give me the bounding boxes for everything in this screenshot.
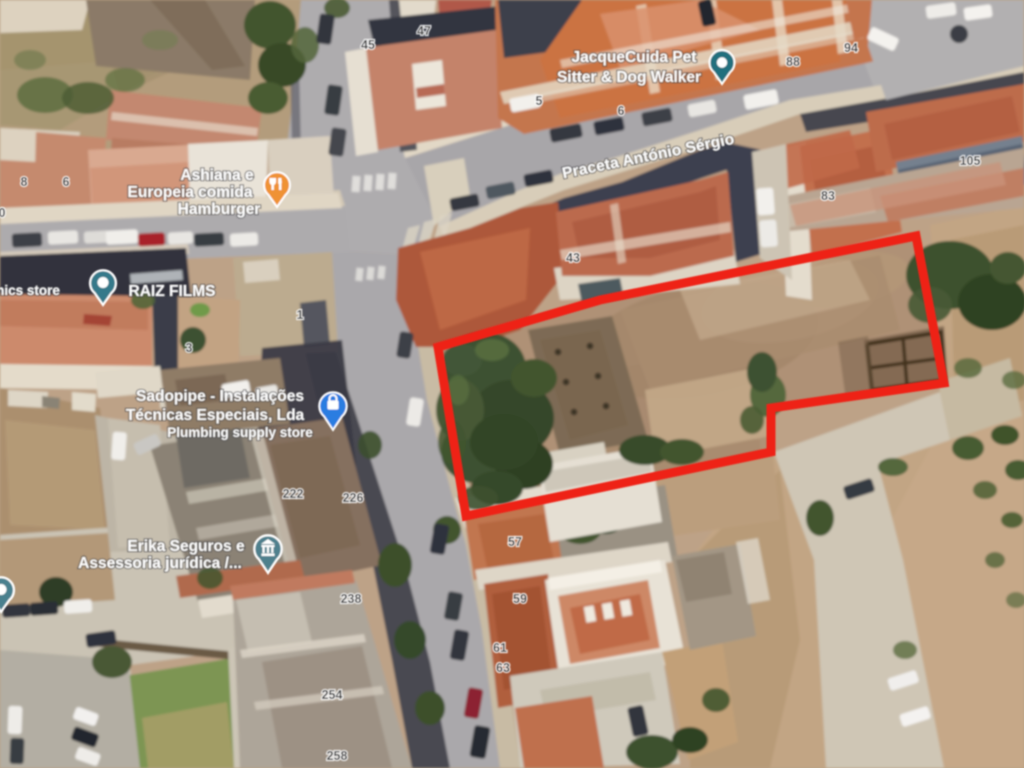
svg-text:Técnicas Especiais, Lda: Técnicas Especiais, Lda (126, 407, 305, 424)
svg-text:105: 105 (960, 154, 981, 168)
svg-text:Sadopipe - Instalações: Sadopipe - Instalações (136, 388, 304, 405)
svg-text:0: 0 (0, 206, 6, 220)
svg-text:Erika Seguros e: Erika Seguros e (127, 538, 245, 555)
svg-text:88: 88 (786, 55, 800, 69)
svg-text:nics store: nics store (0, 283, 60, 298)
svg-text:222: 222 (283, 487, 304, 501)
svg-text:Europeia comida: Europeia comida (128, 184, 253, 201)
svg-text:94: 94 (844, 41, 858, 55)
svg-text:Sitter & Dog Walker: Sitter & Dog Walker (557, 69, 701, 86)
svg-text:6: 6 (618, 104, 625, 118)
svg-text:61: 61 (493, 641, 507, 655)
svg-text:57: 57 (508, 535, 522, 549)
svg-text:238: 238 (341, 592, 362, 606)
svg-text:5: 5 (536, 94, 543, 108)
svg-text:1: 1 (297, 308, 304, 322)
svg-text:258: 258 (327, 749, 348, 763)
svg-text:59: 59 (513, 592, 527, 606)
svg-text:45: 45 (361, 38, 375, 52)
svg-text:6: 6 (63, 175, 70, 189)
svg-text:63: 63 (496, 661, 510, 675)
svg-text:226: 226 (343, 491, 364, 505)
svg-text:JacqueCuida Pet: JacqueCuida Pet (572, 49, 697, 66)
svg-text:83: 83 (821, 189, 835, 203)
svg-text:Plumbing supply store: Plumbing supply store (167, 425, 313, 440)
svg-text:47: 47 (417, 24, 431, 38)
svg-text:254: 254 (322, 688, 343, 702)
svg-text:43: 43 (566, 251, 580, 265)
svg-text:3: 3 (186, 341, 193, 355)
svg-text:8: 8 (21, 175, 28, 189)
svg-text:Ashiana e: Ashiana e (180, 167, 254, 184)
svg-text:Hamburger: Hamburger (178, 201, 261, 218)
svg-text:RAIZ FILMS: RAIZ FILMS (129, 283, 216, 300)
svg-text:Assessoria jurídica /...: Assessoria jurídica /... (78, 555, 242, 572)
